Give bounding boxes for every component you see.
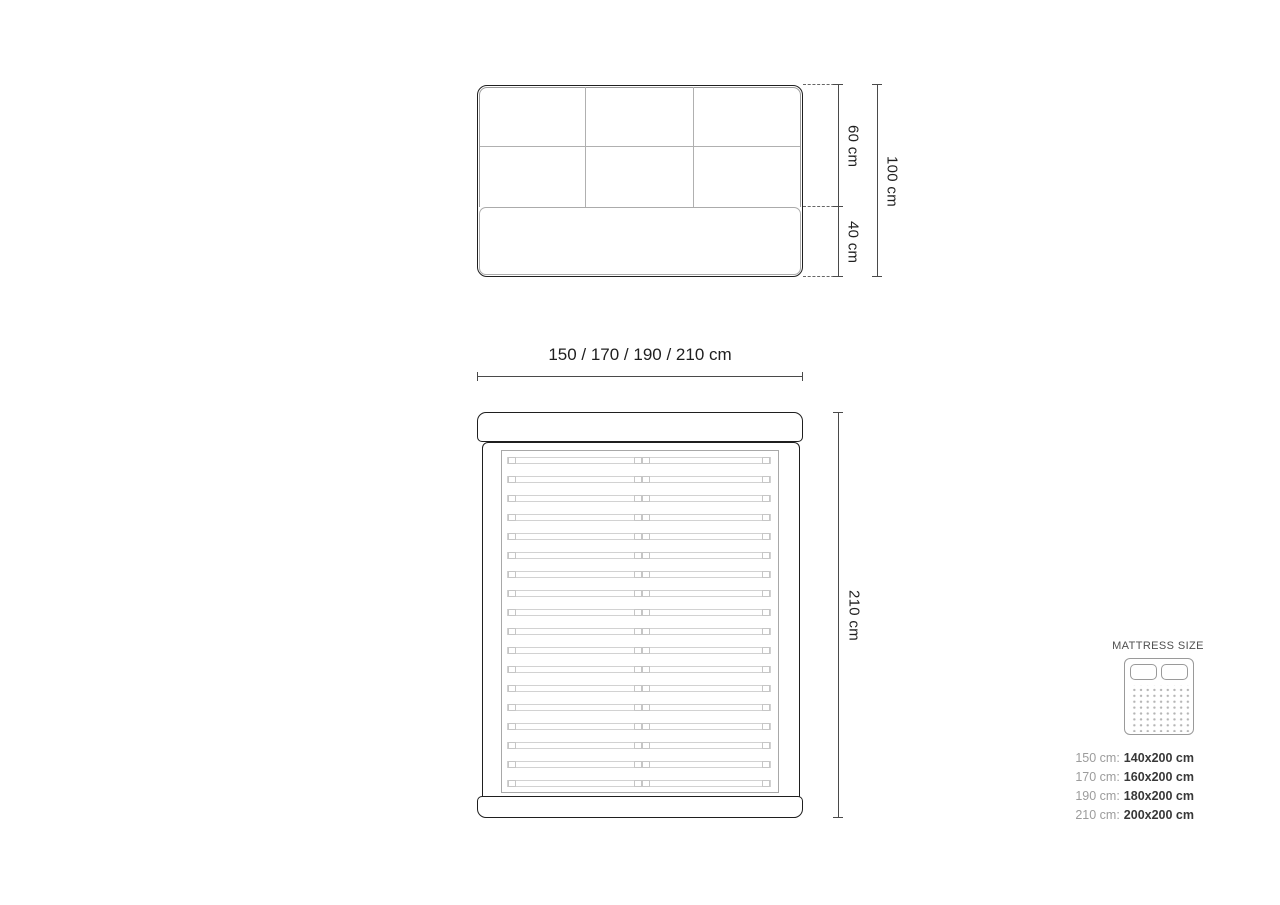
bed-dimension-diagram: 60 cm 40 cm 100 cm 150 / 170 / 190 / 210… — [0, 0, 1280, 905]
slat-holder-clip — [634, 476, 642, 483]
slat-holder-clip — [634, 552, 642, 559]
slat-area — [507, 457, 771, 787]
slat-holder-clip — [508, 609, 516, 616]
bed-slat — [507, 780, 771, 787]
mattress-quilting-dots — [1129, 685, 1190, 732]
mattress-size-value: 160x200 cm — [1124, 770, 1194, 784]
dimension-line-60-40 — [838, 85, 839, 277]
slat-holder-clip — [762, 495, 770, 502]
slat-holder-clip — [642, 704, 650, 711]
dimension-label-width-options: 150 / 170 / 190 / 210 cm — [477, 345, 803, 365]
dimension-label-40cm: 40 cm — [841, 207, 865, 277]
bed-slat — [507, 742, 771, 749]
mattress-top-view-icon — [1124, 658, 1194, 735]
slat-holder-clip — [634, 742, 642, 749]
slat-holder-clip — [634, 514, 642, 521]
slat-holder-clip — [642, 533, 650, 540]
slat-holder-clip — [762, 647, 770, 654]
slat-holder-clip — [762, 666, 770, 673]
slat-holder-clip — [642, 742, 650, 749]
slat-holder-clip — [508, 628, 516, 635]
bed-slat — [507, 533, 771, 540]
frame-width-label: 210 cm: — [1075, 808, 1119, 822]
dimension-label-60cm: 60 cm — [841, 85, 865, 207]
headboard-upholstered-panel — [479, 87, 801, 207]
frame-width-label: 190 cm: — [1075, 789, 1119, 803]
bed-headboard-bar — [477, 412, 803, 442]
slat-holder-clip — [762, 590, 770, 597]
slat-holder-clip — [762, 723, 770, 730]
dimension-line-width — [477, 376, 803, 377]
slat-holder-clip — [508, 761, 516, 768]
mattress-size-title: MATTRESS SIZE — [1094, 640, 1222, 652]
slat-holder-clip — [642, 476, 650, 483]
bed-slat — [507, 590, 771, 597]
slat-holder-clip — [642, 666, 650, 673]
mattress-size-row: 150 cm:140x200 cm — [1060, 749, 1194, 768]
headboard-panel-divider-horizontal — [480, 146, 800, 147]
slat-holder-clip — [634, 571, 642, 578]
slat-holder-clip — [642, 571, 650, 578]
slat-holder-clip — [762, 533, 770, 540]
slat-holder-clip — [634, 704, 642, 711]
bed-slat — [507, 761, 771, 768]
mattress-size-row: 190 cm:180x200 cm — [1060, 787, 1194, 806]
dimension-line-100 — [877, 85, 878, 277]
slat-holder-clip — [508, 476, 516, 483]
slat-holder-clip — [508, 457, 516, 464]
slat-holder-clip — [762, 476, 770, 483]
mattress-size-table: 150 cm:140x200 cm170 cm:160x200 cm190 cm… — [1060, 749, 1194, 825]
slat-holder-clip — [642, 780, 650, 787]
slat-holder-clip — [634, 723, 642, 730]
bed-slat — [507, 495, 771, 502]
frame-width-label: 170 cm: — [1075, 770, 1119, 784]
slat-holder-clip — [634, 647, 642, 654]
slat-holder-clip — [642, 457, 650, 464]
slat-holder-clip — [634, 590, 642, 597]
slat-holder-clip — [642, 761, 650, 768]
slat-holder-clip — [634, 628, 642, 635]
mattress-size-value: 180x200 cm — [1124, 789, 1194, 803]
slat-holder-clip — [642, 609, 650, 616]
headboard-panel-divider-vertical-2 — [693, 87, 694, 207]
bed-slat — [507, 647, 771, 654]
slat-holder-clip — [762, 457, 770, 464]
slat-holder-clip — [508, 552, 516, 559]
slat-holder-clip — [642, 552, 650, 559]
slat-holder-clip — [762, 704, 770, 711]
bed-slat — [507, 704, 771, 711]
slat-holder-clip — [642, 647, 650, 654]
slat-holder-clip — [634, 609, 642, 616]
bed-slat — [507, 552, 771, 559]
dimension-tick — [477, 372, 478, 381]
slat-holder-clip — [508, 780, 516, 787]
slat-holder-clip — [634, 761, 642, 768]
bed-slat — [507, 609, 771, 616]
bed-slat — [507, 685, 771, 692]
dimension-label-100cm: 100 cm — [880, 85, 904, 277]
slat-holder-clip — [508, 647, 516, 654]
mattress-size-value: 200x200 cm — [1124, 808, 1194, 822]
slat-holder-clip — [762, 552, 770, 559]
bed-slat — [507, 457, 771, 464]
slat-holder-clip — [642, 628, 650, 635]
slat-holder-clip — [508, 742, 516, 749]
slat-holder-clip — [508, 571, 516, 578]
mattress-size-row: 170 cm:160x200 cm — [1060, 768, 1194, 787]
bed-slat — [507, 666, 771, 673]
slat-holder-clip — [508, 685, 516, 692]
slat-holder-clip — [762, 514, 770, 521]
slat-holder-clip — [634, 457, 642, 464]
slat-holder-clip — [508, 514, 516, 521]
slat-holder-clip — [642, 514, 650, 521]
pillow-icon-right — [1161, 664, 1188, 680]
slat-holder-clip — [634, 666, 642, 673]
bed-footboard-bar — [477, 796, 803, 818]
slat-holder-clip — [762, 780, 770, 787]
bed-slat — [507, 476, 771, 483]
slat-holder-clip — [634, 685, 642, 692]
bed-slat — [507, 628, 771, 635]
mattress-size-row: 210 cm:200x200 cm — [1060, 806, 1194, 825]
pillow-icon-left — [1130, 664, 1157, 680]
slat-holder-clip — [762, 609, 770, 616]
slat-holder-clip — [642, 685, 650, 692]
dimension-tick — [802, 372, 803, 381]
slat-holder-clip — [642, 723, 650, 730]
slat-holder-clip — [642, 590, 650, 597]
headboard-panel-divider-vertical-1 — [585, 87, 586, 207]
mattress-size-value: 140x200 cm — [1124, 751, 1194, 765]
slat-holder-clip — [634, 495, 642, 502]
slat-holder-clip — [508, 533, 516, 540]
slat-holder-clip — [508, 723, 516, 730]
slat-holder-clip — [762, 685, 770, 692]
slat-holder-clip — [762, 571, 770, 578]
slat-holder-clip — [634, 780, 642, 787]
slat-holder-clip — [508, 666, 516, 673]
dimension-label-210cm: 210 cm — [842, 412, 866, 818]
slat-holder-clip — [508, 495, 516, 502]
bed-slat — [507, 571, 771, 578]
headboard-base-section — [479, 207, 801, 275]
bed-slat — [507, 514, 771, 521]
dimension-line-210 — [838, 412, 839, 818]
slat-holder-clip — [762, 761, 770, 768]
slat-holder-clip — [642, 495, 650, 502]
frame-width-label: 150 cm: — [1075, 751, 1119, 765]
slat-holder-clip — [508, 704, 516, 711]
slat-holder-clip — [762, 628, 770, 635]
slat-holder-clip — [762, 742, 770, 749]
slat-holder-clip — [508, 590, 516, 597]
slat-holder-clip — [634, 533, 642, 540]
bed-slat — [507, 723, 771, 730]
